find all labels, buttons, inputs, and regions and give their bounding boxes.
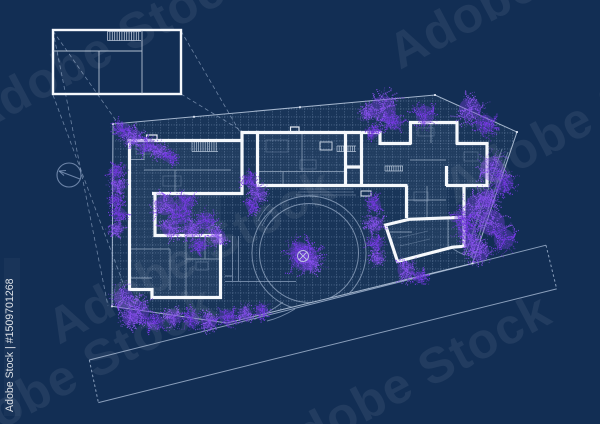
svg-text:Adobe Stock | #1509701268: Adobe Stock | #1509701268 <box>4 278 16 412</box>
